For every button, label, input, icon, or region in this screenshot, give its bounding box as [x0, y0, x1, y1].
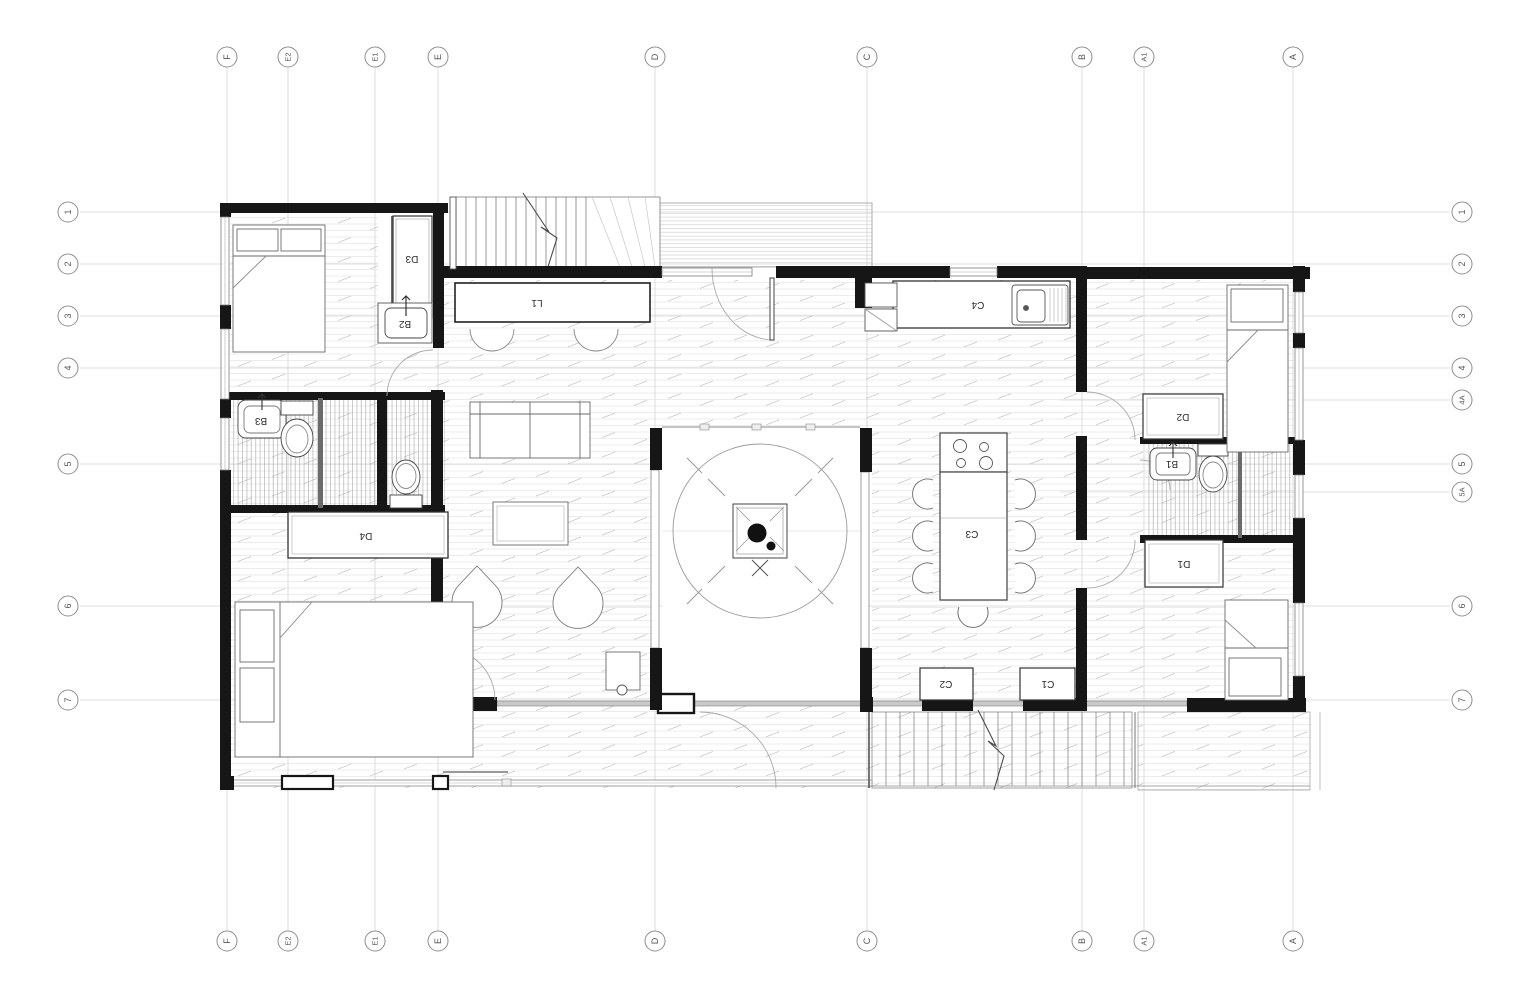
grid-bubble-D: D — [645, 931, 665, 951]
entry-door-leaf — [770, 278, 774, 340]
grid-bubble-label: A — [1288, 938, 1298, 944]
courtyard-glazing-east — [861, 472, 869, 648]
grid-bubble-7: 7 — [58, 690, 78, 710]
grid-bubble-F: F — [217, 931, 237, 951]
grid-bubble-label: F — [222, 54, 232, 60]
grid-bubble-4: 4 — [58, 358, 78, 378]
door-panel — [282, 776, 333, 789]
deck-south — [1138, 712, 1310, 790]
deck-north — [660, 203, 872, 267]
grid-bubble-E: E — [428, 47, 448, 67]
door-post — [433, 776, 448, 789]
grid-bubble-4A: 4A — [1452, 390, 1472, 410]
grid-bubble-7: 7 — [1452, 690, 1472, 710]
grid-bubble-E1: E1 — [365, 931, 385, 951]
floor-plan-sheet: FFE2E2E1E1EEDDCCBBA1A1AA112233444A555A66… — [0, 0, 1519, 1000]
grid-bubble-label: 5A — [1458, 487, 1467, 496]
floor-entry-hall — [652, 280, 872, 428]
kitchen-island-cooktop — [940, 433, 1007, 472]
grid-bubble-label: A — [1288, 54, 1298, 60]
grid-bubble-E1: E1 — [365, 47, 385, 67]
grid-bubble-D: D — [645, 47, 665, 67]
label-d3: D3 — [405, 253, 418, 264]
stair-north — [456, 193, 660, 270]
grid-bubble-B: B — [1072, 47, 1092, 67]
grid-bubble-6: 6 — [58, 596, 78, 616]
grid-bubble-label: 6 — [63, 603, 73, 608]
label-c3: C3 — [965, 528, 978, 539]
label-b3: B3 — [254, 415, 267, 426]
grid-bubble-label: E — [433, 54, 443, 60]
label-b1: B1 — [1165, 458, 1178, 469]
coffee-table — [493, 502, 568, 545]
label-c1: C1 — [1041, 678, 1054, 689]
grid-bubble-label: E2 — [284, 52, 293, 61]
grid-bubble-3: 3 — [58, 306, 78, 326]
grid-bubble-5A: 5A — [1452, 482, 1472, 502]
grid-bubble-2: 2 — [1452, 254, 1472, 274]
grid-bubble-label: E2 — [284, 936, 293, 945]
grid-bubble-C: C — [857, 47, 877, 67]
bed-single-south — [1225, 600, 1288, 700]
side-table — [606, 652, 640, 695]
grid-bubble-label: 2 — [63, 261, 73, 266]
grid-bubble-A: A — [1283, 47, 1303, 67]
grid-bubble-label: 4 — [1457, 365, 1467, 370]
stair-south-area — [872, 712, 1132, 788]
toilet-wc — [390, 460, 422, 508]
grid-bubble-E2: E2 — [278, 931, 298, 951]
floor-plan-drawing: FFE2E2E1E1EEDDCCBBA1A1AA112233444A555A66… — [0, 0, 1519, 1000]
bed-double-south — [235, 602, 473, 757]
grid-bubble-1: 1 — [58, 202, 78, 222]
label-c2: C2 — [939, 678, 952, 689]
grid-bubble-label: 3 — [1457, 313, 1467, 318]
grid-bubble-6: 6 — [1452, 596, 1472, 616]
grid-bubble-label: C — [862, 937, 872, 944]
label-d1: D1 — [1177, 558, 1190, 569]
label-b2: B2 — [398, 318, 411, 329]
grid-bubble-label: 6 — [1457, 603, 1467, 608]
fridge — [865, 283, 897, 331]
grid-bubble-C: C — [857, 931, 877, 951]
label-c4: C4 — [971, 299, 984, 310]
grid-bubble-label: 4 — [63, 365, 73, 370]
grid-bubble-label: 4A — [1458, 395, 1467, 404]
grid-bubble-label: A1 — [1140, 936, 1149, 945]
grid-bubble-4: 4 — [1452, 358, 1472, 378]
grid-bubble-label: B — [1077, 54, 1087, 60]
grid-bubble-3: 3 — [1452, 306, 1472, 326]
grid-bubble-label: 1 — [63, 209, 73, 214]
courtyard — [651, 424, 869, 705]
grid-bubble-A1: A1 — [1134, 931, 1154, 951]
grid-bubble-label: B — [1077, 938, 1087, 944]
grid-bubble-label: E1 — [371, 52, 380, 61]
grid-bubble-label: 7 — [63, 697, 73, 702]
tree-trunk-dot-small — [767, 542, 776, 551]
grid-bubble-A: A — [1283, 931, 1303, 951]
grid-bubble-label: 2 — [1457, 261, 1467, 266]
bed-single-north — [1227, 285, 1288, 452]
grid-bubble-A1: A1 — [1134, 47, 1154, 67]
grid-bubble-label: E1 — [371, 936, 380, 945]
grid-bubble-label: 3 — [63, 313, 73, 318]
grid-bubble-1: 1 — [1452, 202, 1472, 222]
toilet-east — [1198, 444, 1228, 492]
grid-bubble-label: 5 — [63, 461, 73, 466]
grid-bubble-E: E — [428, 931, 448, 951]
label-d2: D2 — [1176, 411, 1189, 422]
label-d4: D4 — [359, 530, 372, 541]
grid-bubble-B: B — [1072, 931, 1092, 951]
door-panel — [658, 694, 694, 713]
grid-bubble-label: D — [650, 937, 660, 944]
grid-bubble-E2: E2 — [278, 47, 298, 67]
toilet-west — [281, 401, 313, 457]
grid-bubble-label: 7 — [1457, 697, 1467, 702]
grid-bubble-5: 5 — [1452, 454, 1472, 474]
grid-bubble-F: F — [217, 47, 237, 67]
courtyard-glazing-west — [651, 470, 659, 648]
grid-bubble-label: C — [862, 53, 872, 60]
grid-bubble-label: E — [433, 938, 443, 944]
grid-bubble-5: 5 — [58, 454, 78, 474]
grid-bubble-label: 1 — [1457, 209, 1467, 214]
grid-bubble-label: 5 — [1457, 461, 1467, 466]
grid-bubble-label: A1 — [1140, 52, 1149, 61]
bed-double-north — [233, 225, 325, 352]
tree-trunk-dot — [748, 524, 767, 543]
grid-bubble-label: D — [650, 53, 660, 60]
grid-bubble-2: 2 — [58, 254, 78, 274]
label-l1: L1 — [531, 297, 543, 308]
grid-bubble-label: F — [222, 938, 232, 944]
sofa — [470, 402, 590, 458]
